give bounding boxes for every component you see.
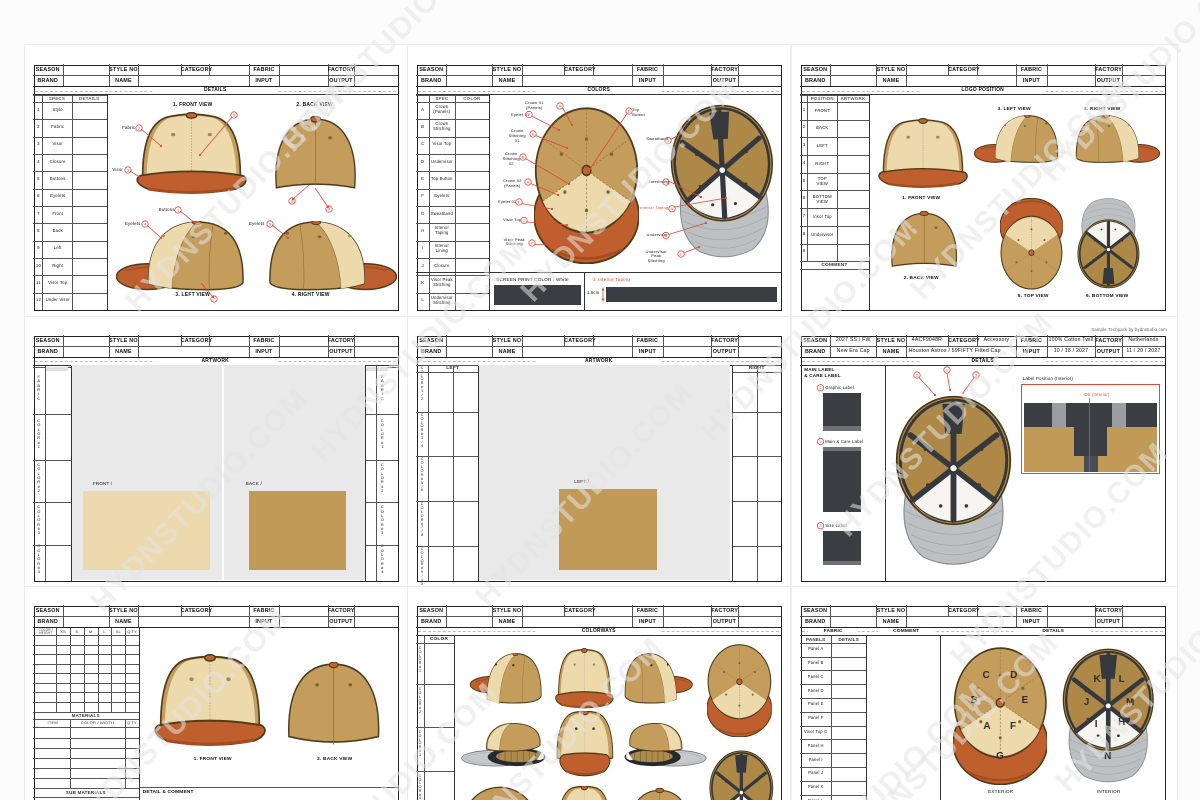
svg-text:F: F xyxy=(518,200,521,205)
svg-text:E: E xyxy=(628,109,631,114)
svg-text:B: B xyxy=(522,155,525,160)
svg-text:3: 3 xyxy=(127,168,130,173)
svg-text:1: 1 xyxy=(177,208,180,213)
svg-text:A: A xyxy=(559,104,562,109)
svg-text:2: 2 xyxy=(916,373,919,378)
svg-text:6: 6 xyxy=(269,222,272,227)
svg-text:1: 1 xyxy=(946,368,949,373)
svg-text:B: B xyxy=(532,132,535,137)
svg-text:1: 1 xyxy=(820,385,823,390)
svg-text:K: K xyxy=(531,241,534,246)
svg-text:I: I xyxy=(666,180,667,185)
svg-text:D: D xyxy=(665,233,668,238)
svg-text:L: L xyxy=(680,252,683,257)
svg-text:G: G xyxy=(667,138,670,143)
svg-text:2: 2 xyxy=(138,126,141,131)
svg-text:3: 3 xyxy=(820,523,823,528)
svg-text:3: 3 xyxy=(975,373,978,378)
svg-text:5: 5 xyxy=(233,113,236,118)
svg-text:C: C xyxy=(523,218,526,223)
svg-text:H: H xyxy=(671,207,674,212)
svg-text:7: 7 xyxy=(213,297,216,302)
svg-text:2: 2 xyxy=(820,439,823,444)
svg-text:4: 4 xyxy=(144,222,147,227)
svg-text:9: 9 xyxy=(328,207,331,212)
svg-text:F: F xyxy=(528,112,531,117)
svg-text:A: A xyxy=(527,180,530,185)
